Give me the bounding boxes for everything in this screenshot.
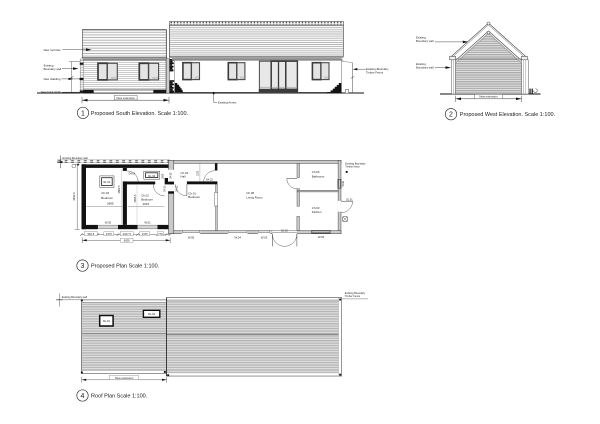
svg-text:D4.05: D4.05 — [170, 172, 173, 179]
svg-text:Proposed West Elevation. Scale: Proposed West Elevation. Scale 1:100. — [460, 112, 556, 118]
svg-text:W.03: W.03 — [261, 235, 268, 239]
svg-text:2915: 2915 — [143, 202, 150, 206]
svg-text:6000: 6000 — [124, 238, 130, 242]
svg-text:Boundary wall: Boundary wall — [44, 67, 62, 71]
svg-text:D4.01: D4.01 — [206, 179, 213, 182]
svg-text:Existing Boundary wall: Existing Boundary wall — [63, 157, 89, 160]
svg-text:W.05: W.05 — [188, 235, 195, 239]
svg-text:4: 4 — [81, 393, 85, 400]
svg-text:2: 2 — [449, 112, 453, 119]
svg-text:2835.5: 2835.5 — [133, 194, 137, 202]
svg-text:1373: 1373 — [197, 170, 200, 176]
svg-text:Ch.03: Ch.03 — [101, 191, 109, 195]
svg-text:770: 770 — [158, 232, 163, 236]
svg-text:Existing Annex: Existing Annex — [218, 100, 237, 104]
svg-text:Timber Fence: Timber Fence — [366, 71, 384, 75]
svg-text:Proposed Plan Scale 1:100.: Proposed Plan Scale 1:100. — [91, 264, 160, 270]
svg-text:Existing Boundary wall: Existing Boundary wall — [62, 296, 88, 299]
svg-text:RL.01: RL.01 — [103, 180, 110, 184]
svg-text:Hall: Hall — [181, 174, 186, 178]
svg-text:Boundary wall: Boundary wall — [416, 39, 434, 43]
svg-text:1905: 1905 — [139, 181, 145, 184]
svg-text:3: 3 — [81, 263, 85, 270]
svg-text:Roof Plan Scale 1:100.: Roof Plan Scale 1:100. — [91, 394, 148, 400]
svg-text:RL.02: RL.02 — [148, 312, 155, 316]
svg-text:W.02: W.02 — [105, 220, 112, 224]
svg-text:1905: 1905 — [161, 173, 164, 179]
svg-text:Proposed South Elevation. Scal: Proposed South Elevation. Scale 1:100. — [91, 111, 189, 117]
svg-text:962.5: 962.5 — [88, 232, 95, 236]
svg-text:1375: 1375 — [106, 232, 112, 236]
svg-text:1: 1 — [81, 110, 85, 117]
svg-text:D4.04: D4.04 — [129, 172, 136, 175]
svg-text:Timber fence: Timber fence — [345, 166, 360, 169]
svg-text:W.01: W.01 — [144, 220, 151, 224]
svg-text:D1.01: D1.01 — [346, 198, 353, 201]
svg-text:D1.02: D1.02 — [281, 230, 288, 233]
svg-text:New roof tiles: New roof tiles — [44, 48, 62, 52]
svg-text:1917.5: 1917.5 — [123, 232, 132, 236]
svg-text:New extension: New extension — [115, 376, 134, 380]
svg-text:New brick plinth: New brick plinth — [41, 90, 61, 94]
svg-text:Bathroom: Bathroom — [312, 174, 325, 178]
svg-text:2685: 2685 — [107, 202, 114, 206]
svg-text:RL.01: RL.01 — [103, 319, 110, 323]
svg-text:RL.02: RL.02 — [148, 174, 155, 178]
svg-text:3882.5: 3882.5 — [117, 185, 121, 193]
svg-text:Timber Fence: Timber Fence — [345, 295, 361, 298]
svg-text:New cladding: New cladding — [44, 77, 61, 81]
svg-text:W.04: W.04 — [235, 235, 242, 239]
svg-text:New extension: New extension — [479, 95, 498, 99]
svg-text:1375: 1375 — [142, 232, 148, 236]
svg-text:Bedroom: Bedroom — [141, 197, 153, 201]
svg-text:Bedroom: Bedroom — [101, 196, 113, 200]
svg-text:W.02: W.02 — [318, 235, 325, 239]
svg-text:Kitchen: Kitchen — [312, 210, 322, 214]
svg-text:Living Room: Living Room — [246, 196, 263, 200]
svg-text:Bedroom: Bedroom — [188, 195, 200, 199]
svg-text:New extension: New extension — [117, 96, 136, 100]
svg-text:4492.5: 4492.5 — [72, 192, 76, 201]
svg-text:Boundary wall: Boundary wall — [416, 65, 434, 69]
svg-text:D4.02: D4.02 — [175, 185, 178, 192]
svg-text:D4.03: D4.03 — [164, 185, 167, 192]
svg-text:W.06: W.06 — [342, 180, 345, 186]
